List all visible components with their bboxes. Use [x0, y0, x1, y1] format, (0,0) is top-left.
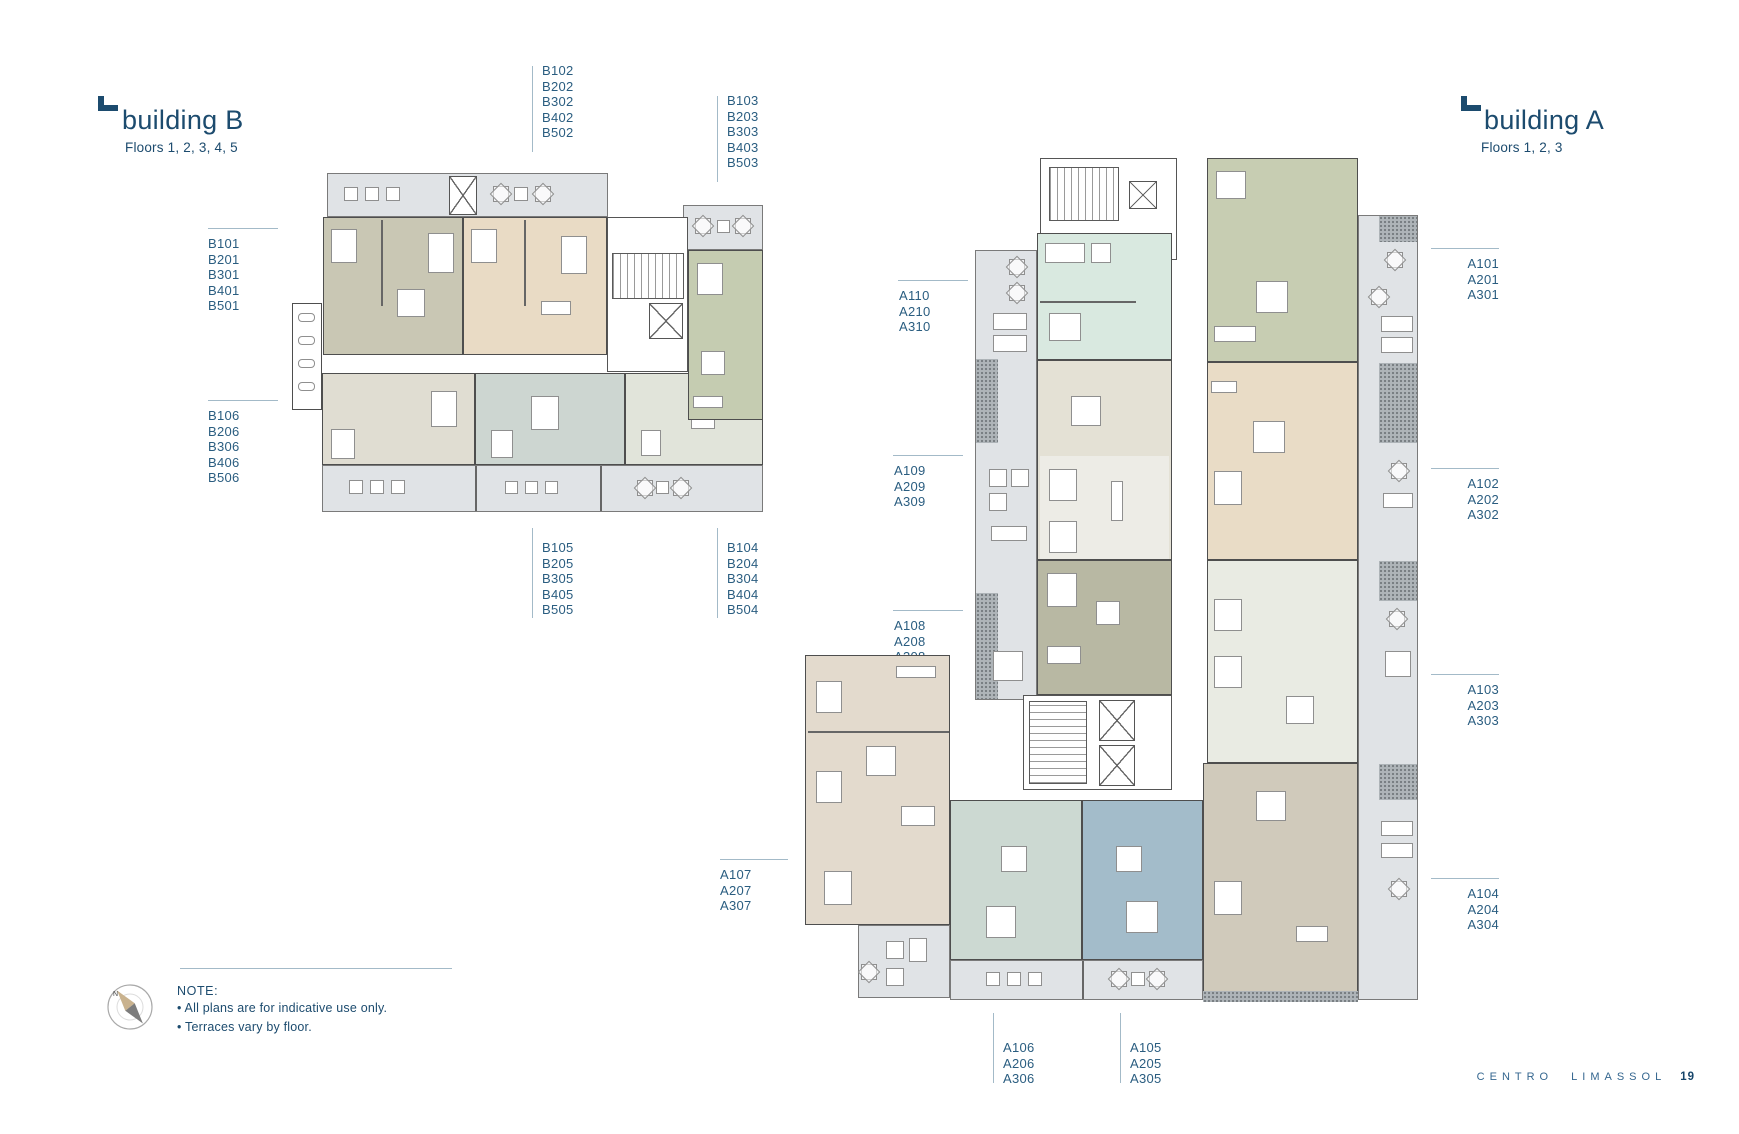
unit-label-b106: B106 B206 B306 B406 B506 — [208, 408, 240, 486]
table-icon — [993, 651, 1023, 681]
callout-rule-a103 — [1431, 674, 1499, 675]
sofa-icon — [1047, 646, 1081, 664]
furniture-icon — [717, 220, 730, 233]
sofa-icon — [1045, 243, 1085, 263]
furniture-icon — [344, 187, 358, 201]
furniture-icon — [1007, 972, 1021, 986]
elevator-icon — [1129, 181, 1157, 209]
unit-label-b101: B101 B201 B301 B401 B501 — [208, 236, 240, 314]
callout-rule-a109 — [893, 455, 963, 456]
terrace-a-east — [1358, 215, 1418, 1000]
table-icon — [1286, 696, 1314, 724]
furniture-icon — [986, 972, 1000, 986]
plan-unit-a109 — [1037, 360, 1172, 560]
bed-icon — [1126, 901, 1158, 933]
plant-icon — [1387, 252, 1403, 268]
furniture-icon — [1381, 337, 1413, 353]
plan-core-b — [607, 217, 688, 372]
unit-label-a107: A107 A207 A307 — [720, 867, 752, 914]
wall — [600, 466, 602, 511]
bed-icon — [1214, 599, 1242, 631]
terrace-a107-south — [858, 925, 950, 998]
furniture-icon — [1381, 821, 1413, 836]
plant-icon — [1149, 971, 1165, 987]
plant-icon — [735, 218, 751, 234]
furniture-icon — [370, 480, 384, 494]
kitchen-icon — [693, 396, 723, 408]
callout-rule-b106 — [208, 400, 278, 401]
furniture-icon — [993, 313, 1027, 330]
wardrobe-icon — [896, 666, 936, 678]
kitchen-icon — [1211, 381, 1237, 393]
plan-unit-a102 — [1207, 362, 1358, 560]
furniture-icon — [989, 493, 1007, 511]
furniture-icon — [886, 941, 904, 959]
sofa-icon — [531, 396, 559, 430]
callout-rule-b104 — [717, 528, 718, 618]
bed-icon — [1214, 471, 1242, 505]
plant-icon — [1009, 285, 1025, 301]
table-icon — [1256, 791, 1286, 821]
bed-icon — [331, 429, 355, 459]
furniture-icon — [298, 336, 315, 345]
stairs-icon — [1049, 167, 1119, 221]
wall-stipple — [1379, 561, 1417, 601]
kitchen-icon — [541, 301, 571, 315]
plant-icon — [695, 218, 711, 234]
plant-icon — [1391, 881, 1407, 897]
building-a-floors: Floors 1, 2, 3 — [1481, 140, 1563, 155]
sofa-icon — [431, 391, 457, 427]
wall-stipple — [1203, 991, 1358, 1002]
page: building B Floors 1, 2, 3, 4, 5 building… — [0, 0, 1739, 1134]
plan-balcony-b-west — [292, 303, 322, 410]
bed-icon — [331, 229, 357, 263]
plant-icon — [493, 186, 509, 202]
furniture-icon — [298, 382, 315, 391]
note-line: • Terraces vary by floor. — [177, 1020, 312, 1034]
callout-rule-a102 — [1431, 468, 1499, 469]
wall — [475, 466, 477, 511]
note-line: • All plans are for indicative use only. — [177, 1001, 387, 1015]
bed-icon — [491, 430, 513, 458]
building-b-floors: Floors 1, 2, 3, 4, 5 — [125, 140, 238, 155]
wall-stipple — [1379, 764, 1417, 800]
furniture-icon — [989, 469, 1007, 487]
bed-icon — [641, 430, 661, 456]
terrace-b-bottom — [322, 465, 763, 512]
plan-unit-b102 — [463, 217, 607, 355]
callout-rule-a108 — [893, 610, 963, 611]
table-icon — [866, 746, 896, 776]
corner-mark-b-icon — [98, 96, 118, 111]
sofa-icon — [901, 806, 935, 826]
furniture-icon — [1381, 316, 1413, 332]
table-icon — [1253, 421, 1285, 453]
furniture-icon — [391, 480, 405, 494]
furniture-icon — [349, 480, 363, 494]
wall — [808, 731, 949, 733]
furniture-icon — [1091, 243, 1111, 263]
page-footer: CENTRO LIMASSOL 19 — [1477, 1071, 1695, 1083]
wall-stipple — [976, 359, 998, 443]
plant-icon — [1111, 971, 1127, 987]
elevator-icon — [1099, 745, 1135, 786]
terrace-a-west — [975, 250, 1037, 700]
plan-unit-a108 — [1037, 560, 1172, 695]
compass-north-label: N — [113, 991, 118, 998]
table-icon — [1256, 281, 1288, 313]
callout-rule-a110 — [898, 280, 968, 281]
bed-icon — [824, 871, 852, 905]
compass-icon: N — [105, 982, 155, 1032]
plan-core-a-central — [1023, 695, 1172, 790]
table-icon — [1071, 396, 1101, 426]
furniture-icon — [514, 187, 528, 201]
terrace-b103 — [683, 205, 763, 250]
plan-unit-a101 — [1207, 158, 1358, 362]
furniture-icon — [298, 313, 315, 322]
callout-rule-a105 — [1120, 1013, 1121, 1083]
unit-label-a106: A106 A206 A306 — [1003, 1040, 1035, 1087]
callout-rule-a106 — [993, 1013, 994, 1083]
callout-rule-b101 — [208, 228, 278, 229]
wall-stipple — [976, 593, 998, 699]
table-icon — [397, 289, 425, 317]
callout-rule-b103 — [717, 96, 718, 182]
sofa-icon — [1214, 326, 1256, 342]
furniture-icon — [298, 359, 315, 368]
unit-label-b105: B105 B205 B305 B405 B505 — [542, 540, 574, 618]
bed-icon — [816, 681, 842, 713]
sofa-icon — [1296, 926, 1328, 942]
furniture-icon — [505, 481, 518, 494]
plant-icon — [1391, 463, 1407, 479]
shaft-icon — [449, 176, 477, 215]
elevator-icon — [1099, 700, 1135, 741]
table-icon — [1096, 601, 1120, 625]
bed-icon — [1047, 573, 1077, 607]
bed-icon — [1216, 171, 1246, 199]
plant-icon — [1389, 611, 1405, 627]
furniture-icon — [1381, 843, 1413, 858]
unit-label-a110: A110 A210 A310 — [899, 288, 931, 335]
wall — [381, 220, 383, 306]
terrace-b-top — [327, 173, 608, 217]
elevator-icon — [649, 303, 683, 339]
plant-icon — [637, 480, 653, 496]
plan-unit-a105 — [1082, 800, 1203, 960]
bed-icon — [1214, 881, 1242, 915]
bed-icon — [1049, 469, 1077, 501]
plan-unit-a106 — [950, 800, 1082, 960]
callout-rule-a107 — [720, 859, 788, 860]
plant-icon — [861, 964, 877, 980]
wall — [524, 220, 526, 306]
furniture-icon — [1028, 972, 1042, 986]
plant-icon — [1371, 289, 1387, 305]
corner-mark-a-icon — [1461, 96, 1481, 111]
furniture-icon — [1385, 651, 1411, 677]
note-heading: NOTE: — [177, 984, 218, 998]
callout-rule-a104 — [1431, 878, 1499, 879]
bed-icon — [1049, 313, 1081, 341]
unit-label-a105: A105 A205 A305 — [1130, 1040, 1162, 1087]
furniture-icon — [386, 187, 400, 201]
stairs-icon — [1029, 701, 1087, 784]
plant-icon — [673, 480, 689, 496]
wall — [1082, 961, 1084, 999]
plant-icon — [1009, 259, 1025, 275]
footer-brand: CENTRO LIMASSOL — [1477, 1071, 1667, 1083]
plant-icon — [535, 186, 551, 202]
bed-icon — [1214, 656, 1242, 688]
wall-stipple — [1379, 363, 1417, 443]
plan-unit-a103 — [1207, 560, 1358, 763]
table-icon — [701, 351, 725, 375]
unit-label-a109: A109 A209 A309 — [894, 463, 926, 510]
unit-label-b104: B104 B204 B304 B404 B504 — [727, 540, 759, 618]
terrace-a-south — [950, 960, 1203, 1000]
furniture-icon — [365, 187, 379, 201]
wall-stipple — [1379, 216, 1417, 242]
callout-rule-b105 — [532, 528, 533, 618]
wardrobe-icon — [1111, 481, 1123, 521]
sofa-icon — [561, 236, 587, 274]
wall — [1040, 301, 1136, 303]
note-rule — [180, 968, 452, 969]
table-icon — [1001, 846, 1027, 872]
plan-unit-b101 — [323, 217, 463, 355]
plan-unit-b103 — [688, 250, 763, 420]
furniture-icon — [993, 335, 1027, 352]
furniture-icon — [525, 481, 538, 494]
furniture-icon — [886, 968, 904, 986]
building-b-title: building B — [122, 105, 244, 136]
callout-rule-b102 — [532, 66, 533, 152]
furniture-icon — [991, 526, 1027, 541]
sofa-icon — [428, 233, 454, 273]
unit-label-b102: B102 B202 B302 B402 B502 — [542, 63, 574, 141]
plan-unit-a110 — [1037, 233, 1172, 360]
unit-label-b103: B103 B203 B303 B403 B503 — [727, 93, 759, 171]
furniture-icon — [656, 481, 669, 494]
furniture-icon — [1131, 972, 1145, 986]
plan-unit-a104 — [1203, 763, 1358, 993]
bed-icon — [986, 906, 1016, 938]
bed-icon — [816, 771, 842, 803]
bed-icon — [1049, 521, 1077, 553]
stairs-icon — [612, 253, 684, 299]
bed-icon — [471, 229, 497, 263]
plan-unit-b105 — [475, 373, 625, 465]
callout-rule-a101 — [1431, 248, 1499, 249]
plan-unit-b106 — [322, 373, 475, 465]
furniture-icon — [1383, 493, 1413, 508]
table-icon — [1116, 846, 1142, 872]
furniture-icon — [909, 938, 927, 962]
furniture-icon — [1011, 469, 1029, 487]
furniture-icon — [545, 481, 558, 494]
footer-page-number: 19 — [1680, 1071, 1695, 1083]
bed-icon — [697, 263, 723, 295]
building-a-title: building A — [1484, 105, 1604, 136]
plan-unit-a107 — [805, 655, 950, 925]
